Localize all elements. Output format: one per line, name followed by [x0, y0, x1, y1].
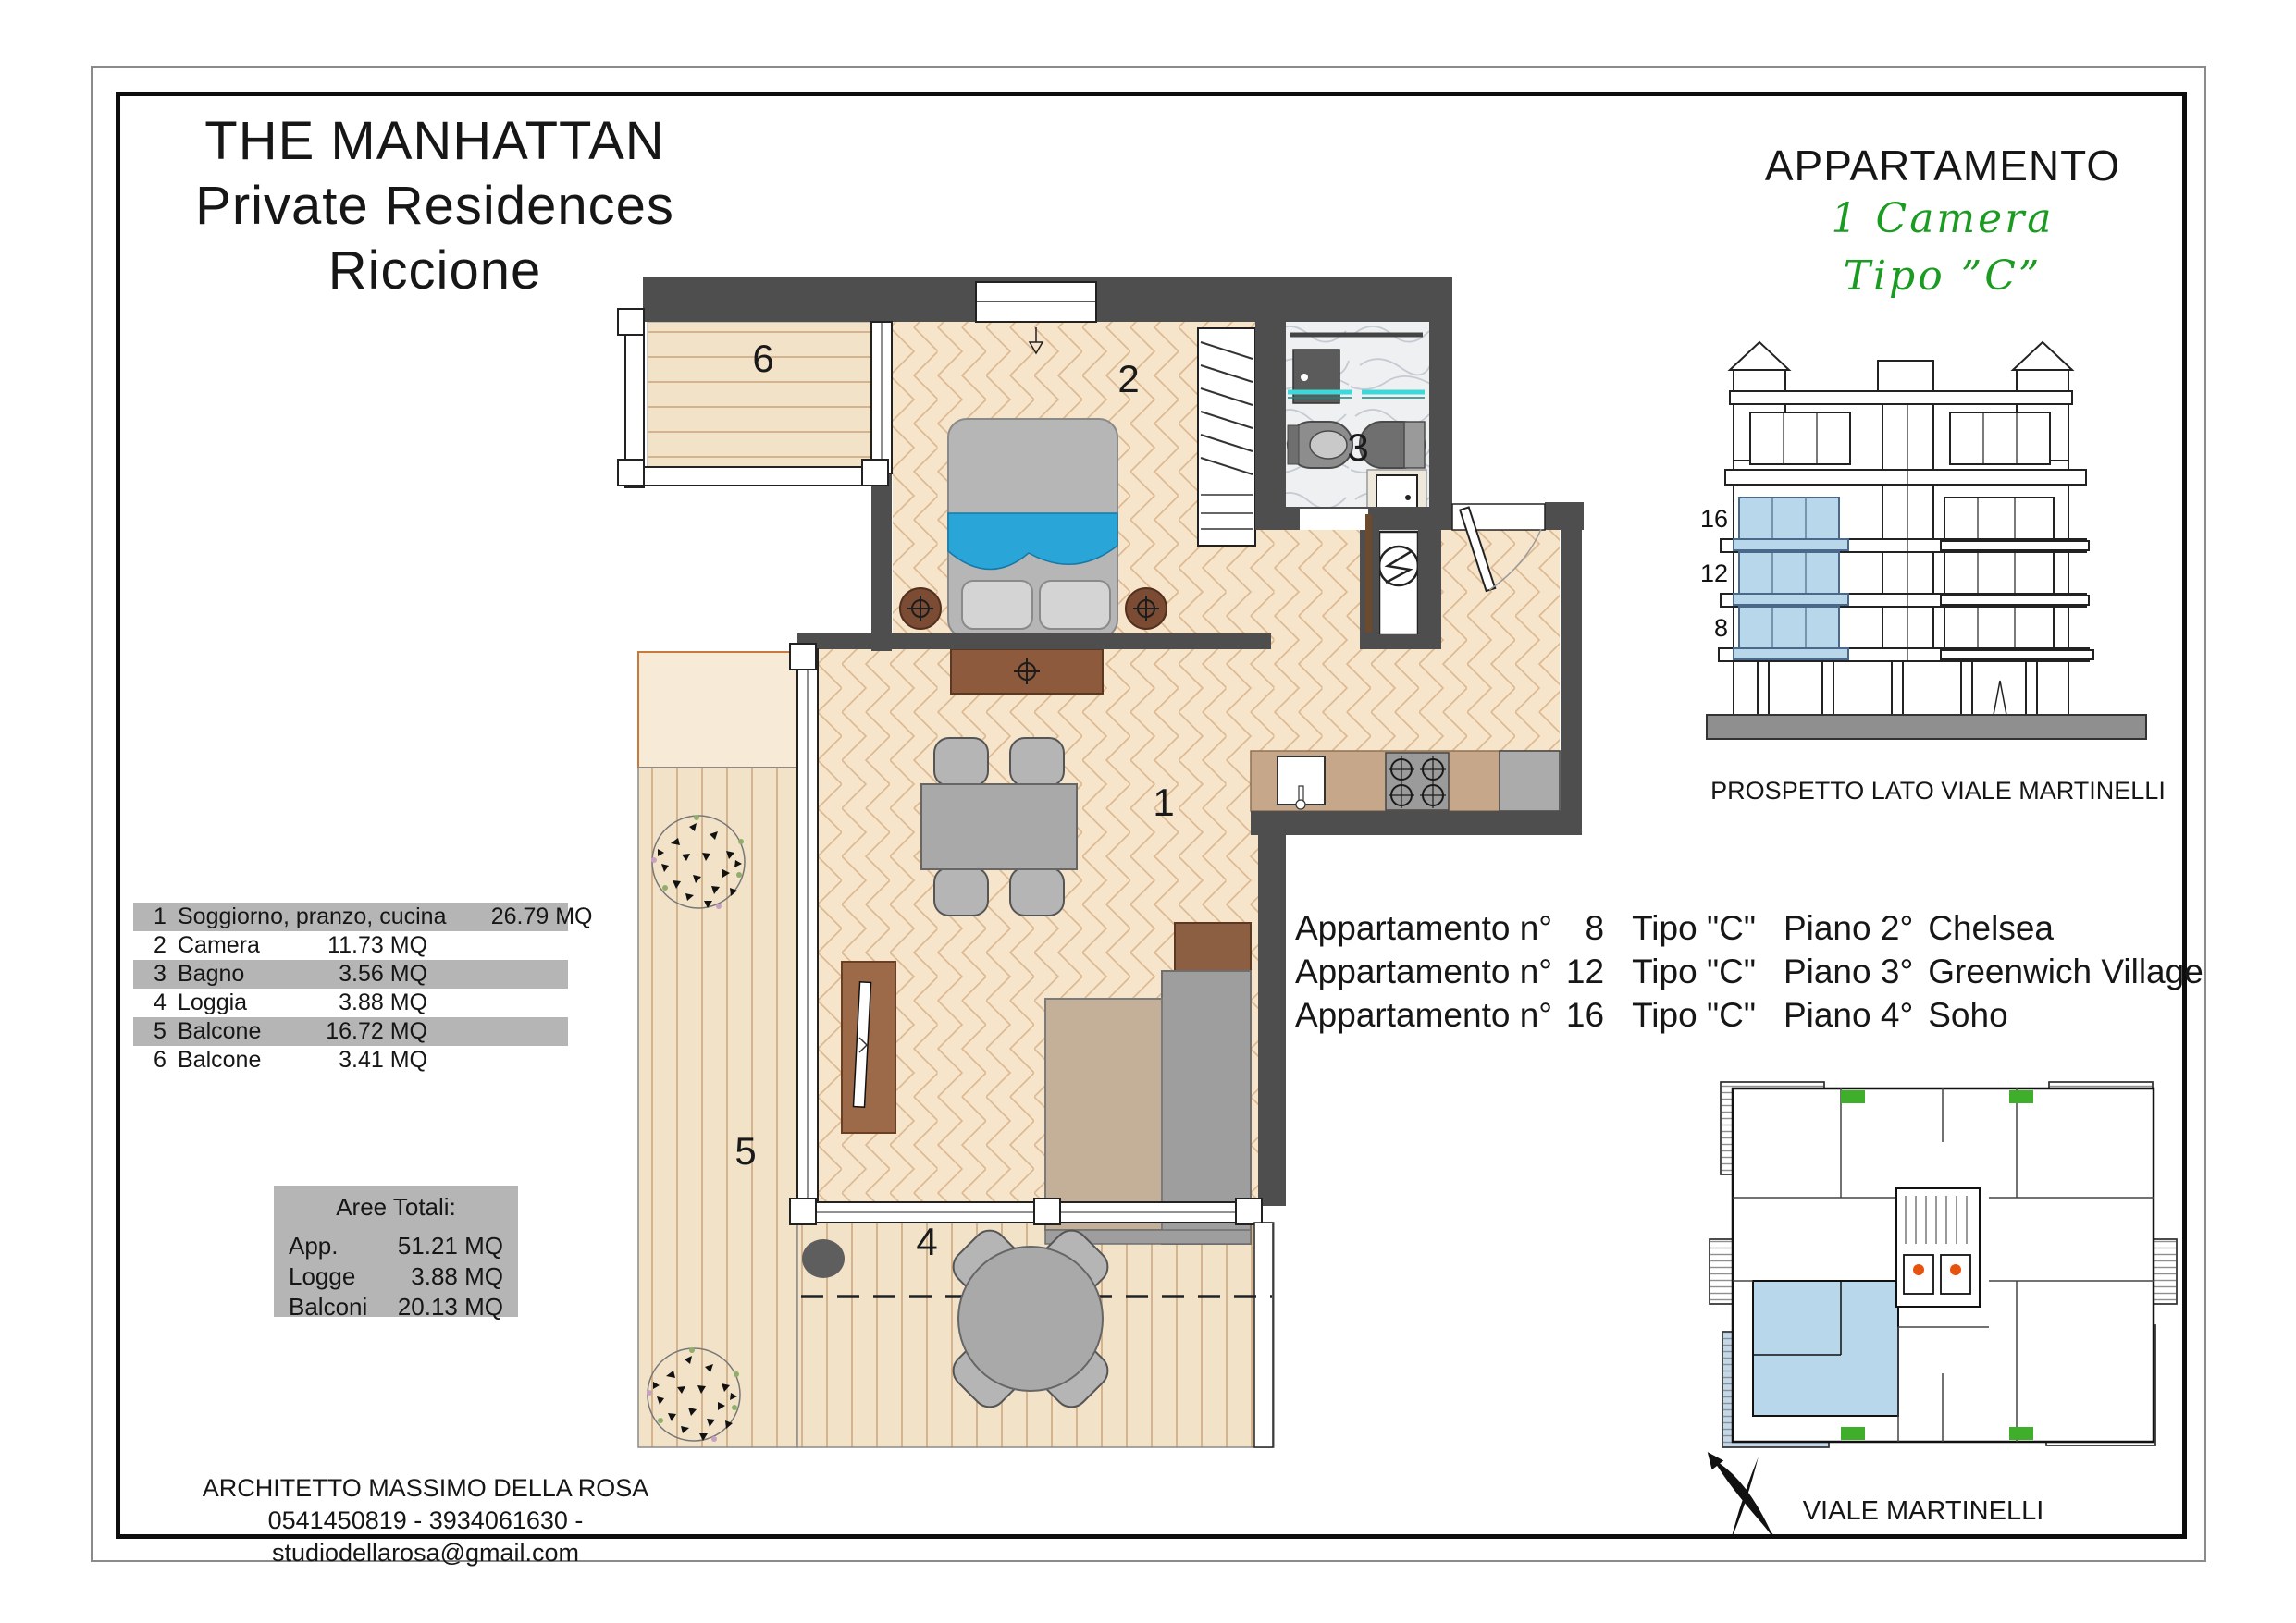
bathroom-door-opening — [1300, 509, 1368, 530]
legend-row: 2 Camera 11.73 MQ — [133, 931, 568, 960]
legend-row: 4 Loggia 3.88 MQ — [133, 989, 568, 1017]
drawing-sheet: { "title": {"lines": ["THE MANHATTAN", "… — [0, 0, 2296, 1623]
nightstand-right — [1126, 588, 1167, 629]
pillow-left — [962, 581, 1032, 629]
totals-row: App. 51.21 MQ — [274, 1231, 518, 1261]
balcony5-upper-projection — [638, 652, 797, 768]
apt-tipo: Tipo "C" — [1632, 950, 1756, 993]
apt-number: 16 — [1552, 993, 1604, 1037]
room-name: Loggia — [178, 990, 289, 1016]
room-label-6: 6 — [752, 337, 773, 380]
room-num: 5 — [154, 1018, 178, 1045]
left-tower-roof — [1730, 342, 1789, 370]
apt-piano: Piano 2° — [1784, 906, 1913, 950]
apartment-list: Appartamento n° 8 Tipo "C" Piano 2° Chel… — [1295, 906, 2203, 1037]
hall-floor-c — [1255, 647, 1560, 753]
totals-row: Balconi 20.13 MQ — [274, 1292, 518, 1322]
room-num: 4 — [154, 990, 178, 1016]
room-legend: 1 Soggiorno, pranzo, cucina 26.79 MQ 2 C… — [133, 903, 568, 1075]
totals-label: Logge — [289, 1261, 355, 1292]
apartment-row: Appartamento n° 16 Tipo "C" Piano 4° Soh… — [1295, 993, 2203, 1037]
apt-prefix: Appartamento n° — [1295, 950, 1552, 993]
apartment-type-line: Tipo ”C” — [1739, 248, 2146, 305]
outdoor-table-group — [946, 1223, 1115, 1414]
floor-number-labels: 16 12 8 — [1700, 505, 1728, 642]
architect-contacts: 0541450819 - 3934061630 - studiodellaros… — [120, 1505, 731, 1569]
apt-tipo: Tipo "C" — [1632, 906, 1756, 950]
apt-tipo: Tipo "C" — [1632, 993, 1756, 1037]
building-elevation: 16 12 8 — [1693, 340, 2174, 747]
dining-table — [921, 784, 1077, 869]
chair — [1010, 867, 1064, 916]
totals-label: Balconi — [289, 1292, 367, 1322]
apt-zone: Chelsea — [1928, 906, 2054, 950]
sofa-seat — [1045, 999, 1162, 1230]
kitchen — [1251, 751, 1560, 811]
room-label-1: 1 — [1153, 781, 1174, 824]
legend-row: 1 Soggiorno, pranzo, cucina 26.79 MQ — [133, 903, 568, 931]
project-title-line1: THE MANHATTAN — [157, 109, 712, 174]
totals-box: Aree Totali: App. 51.21 MQ Logge 3.88 MQ… — [274, 1186, 518, 1317]
room-name: Balcone — [178, 1047, 289, 1074]
totals-value: 20.13 MQ — [398, 1292, 503, 1322]
apartment-row: Appartamento n° 8 Tipo "C" Piano 2° Chel… — [1295, 906, 2203, 950]
room-area: 16.72 MQ — [289, 1018, 427, 1045]
tv-cabinet — [842, 962, 895, 1133]
totals-value: 3.88 MQ — [411, 1261, 503, 1292]
right-tower-roof — [2013, 342, 2072, 370]
apartment-row: Appartamento n° 12 Tipo "C" Piano 3° Gre… — [1295, 950, 2203, 993]
apt-zone: Greenwich Village — [1928, 950, 2203, 993]
toilet — [1288, 422, 1352, 468]
chair — [934, 867, 988, 916]
room-area: 3.88 MQ — [289, 990, 427, 1016]
street-caption: VIALE MARTINELLI — [1798, 1496, 2048, 1527]
pillow-right — [1040, 581, 1110, 629]
bed — [948, 419, 1117, 638]
floor-label-8: 8 — [1714, 614, 1728, 642]
hall-floor-a — [1255, 518, 1360, 649]
project-title-line2: Private Residences — [157, 174, 712, 239]
wardrobe — [1198, 328, 1255, 546]
room-area: 3.56 MQ — [289, 961, 427, 988]
balcony5-deck — [638, 768, 797, 1447]
room-label-5: 5 — [734, 1129, 756, 1173]
apt-piano: Piano 3° — [1784, 950, 1913, 993]
floor-label-12: 12 — [1700, 559, 1728, 587]
apt-piano: Piano 4° — [1784, 993, 1913, 1037]
chair — [934, 738, 988, 786]
kitchen-tap — [1296, 800, 1305, 809]
hall-floor-b — [1441, 525, 1560, 649]
room-num: 1 — [154, 904, 178, 930]
room-label-2: 2 — [1117, 357, 1139, 400]
room-name: Bagno — [178, 961, 289, 988]
highlighted-floors — [1734, 498, 1848, 659]
round-table — [958, 1247, 1103, 1391]
fridge-column — [1500, 751, 1560, 811]
bedroom-sideboard — [951, 649, 1103, 694]
apartment-rooms-line: 1 Camera — [1739, 191, 2146, 248]
totals-row: Logge 3.88 MQ — [274, 1261, 518, 1292]
apartment-header-title: APPARTAMENTO — [1739, 141, 2146, 191]
room-num: 6 — [154, 1047, 178, 1074]
key-plan — [1702, 1059, 2183, 1549]
room-name: Camera — [178, 932, 289, 959]
roof-cornice — [1730, 391, 2072, 404]
room-name: Soggiorno, pranzo, cucina — [178, 904, 453, 930]
apartment-type-header: APPARTAMENTO 1 Camera Tipo ”C” — [1739, 141, 2146, 305]
room-area: 11.73 MQ — [289, 932, 427, 959]
room-label-3: 3 — [1347, 425, 1368, 469]
legend-row: 6 Balcone 3.41 MQ — [133, 1046, 568, 1075]
apt-number: 12 — [1552, 950, 1604, 993]
apt-zone: Soho — [1928, 993, 2007, 1037]
key-stair-core — [1896, 1188, 1980, 1307]
deck-rail-right — [1254, 1223, 1273, 1447]
totals-title: Aree Totali: — [274, 1193, 518, 1222]
room-label-4: 4 — [916, 1220, 937, 1263]
ground-base — [1707, 715, 2146, 739]
bathroom-door-leaf — [1365, 514, 1372, 633]
room-num: 2 — [154, 932, 178, 959]
apt-prefix: Appartamento n° — [1295, 993, 1552, 1037]
room-area: 3.41 MQ — [289, 1047, 427, 1074]
stair-tower-top — [1878, 361, 1933, 391]
sofa-headrest — [1175, 923, 1251, 971]
totals-label: App. — [289, 1231, 339, 1261]
apt-number: 8 — [1552, 906, 1604, 950]
totals-value: 51.21 MQ — [398, 1231, 503, 1261]
boiler-closet — [1379, 532, 1418, 635]
legend-row: 5 Balcone 16.72 MQ — [133, 1017, 568, 1046]
key-highlighted-unit — [1753, 1281, 1898, 1416]
bidet — [1360, 422, 1425, 468]
apt-prefix: Appartamento n° — [1295, 906, 1552, 950]
vanity-sink — [1293, 350, 1339, 403]
room-num: 3 — [154, 961, 178, 988]
room-area: 26.79 MQ — [453, 904, 592, 930]
floor-plan: 1 2 3 4 5 6 — [601, 231, 1656, 1507]
architect-name: ARCHITETTO MASSIMO DELLA ROSA — [120, 1472, 731, 1505]
floor-label-16: 16 — [1700, 505, 1728, 533]
nightstand-left — [900, 588, 941, 629]
legend-row: 3 Bagno 3.56 MQ — [133, 960, 568, 989]
chair — [1010, 738, 1064, 786]
planter-pot — [802, 1239, 845, 1278]
architect-block: ARCHITETTO MASSIMO DELLA ROSA 0541450819… — [120, 1472, 731, 1569]
room-name: Balcone — [178, 1018, 289, 1045]
elevation-caption: PROSPETTO LATO VIALE MARTINELLI — [1702, 777, 2174, 805]
